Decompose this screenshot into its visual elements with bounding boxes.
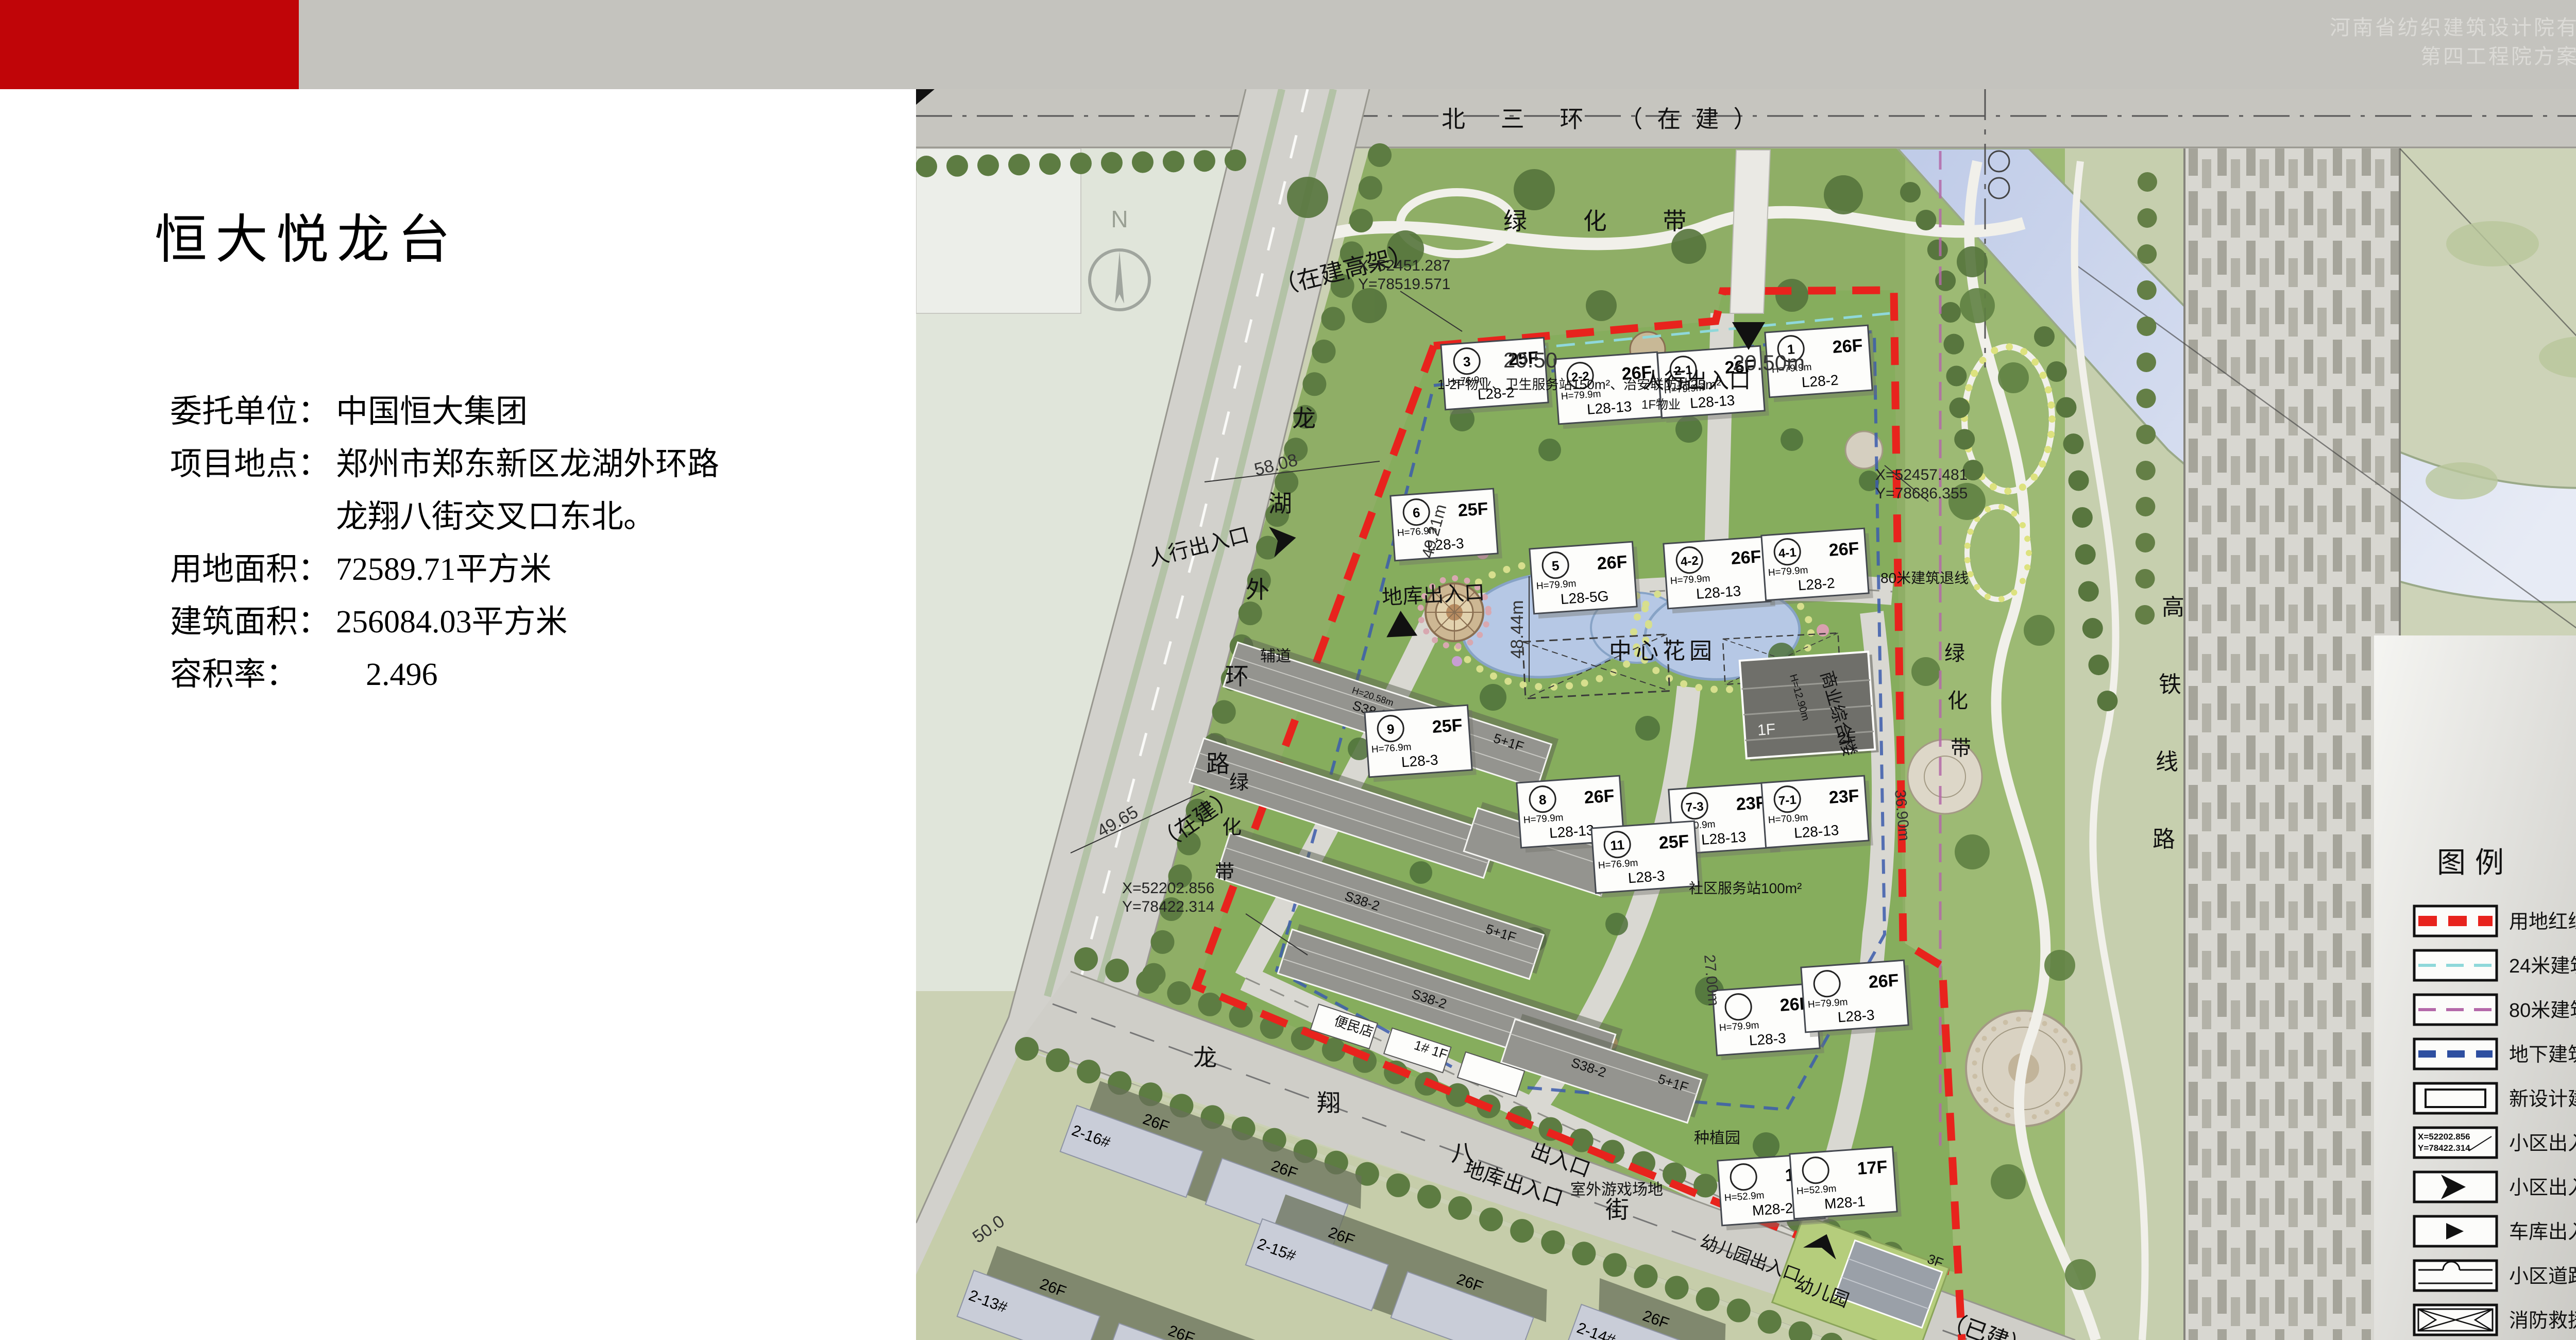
- svg-text:小区道路: 小区道路: [2509, 1266, 2576, 1287]
- svg-text:26F: 26F: [1828, 539, 1860, 560]
- svg-text:翔: 翔: [1317, 1090, 1341, 1116]
- site-plan-map: 北 三 环 （在建）: [916, 89, 2576, 1340]
- slide: 河南省纺织建筑设计院有限公司 第四工程院方案创作所 恒大悦龙台 委托单位： 中国…: [0, 0, 2576, 1340]
- svg-text:7-3: 7-3: [1685, 800, 1704, 815]
- svg-text:化: 化: [1222, 817, 1242, 839]
- tower: 5 26F H=79.9m L28-5G: [1530, 542, 1641, 619]
- svg-text:20.50: 20.50: [1503, 348, 1557, 372]
- svg-text:X=52457.481: X=52457.481: [1875, 466, 1968, 483]
- svg-text:4-1: 4-1: [1778, 546, 1797, 561]
- svg-text:车库出入口: 车库出入口: [2509, 1221, 2576, 1243]
- svg-text:48.44m: 48.44m: [1507, 600, 1527, 659]
- svg-text:路: 路: [2153, 827, 2175, 852]
- tower: 26F H=79.9m L28-3: [1801, 960, 1913, 1037]
- svg-text:环: 环: [1225, 663, 1249, 690]
- svg-text:带: 带: [1215, 862, 1234, 883]
- svg-text:八: 八: [1451, 1140, 1475, 1166]
- compass-north-label: N: [1111, 206, 1128, 232]
- svg-text:L28-5G: L28-5G: [1560, 588, 1609, 607]
- svg-text:L28-2: L28-2: [1801, 372, 1839, 390]
- svg-text:L28-3: L28-3: [1749, 1030, 1787, 1048]
- svg-text:26F: 26F: [1731, 547, 1762, 568]
- svg-text:5: 5: [1551, 558, 1560, 574]
- walkway: [1730, 150, 1770, 313]
- svg-text:街: 街: [1605, 1196, 1629, 1223]
- svg-text:化: 化: [1947, 690, 1968, 712]
- svg-text:龙: 龙: [1193, 1044, 1217, 1071]
- header-bar: 河南省纺织建筑设计院有限公司 第四工程院方案创作所: [0, 0, 2576, 89]
- garden-label: 种植园: [1694, 1130, 1740, 1147]
- svg-text:线: 线: [2156, 749, 2178, 775]
- company-line1: 河南省纺织建筑设计院有限公司: [2330, 13, 2576, 42]
- svg-text:Y=78422.314: Y=78422.314: [1122, 898, 1214, 915]
- tower: 9 25F H=76.9m L28-3: [1365, 705, 1477, 782]
- svg-text:6: 6: [1412, 505, 1421, 521]
- tower: 7-1 23F H=70.9m L28-13: [1761, 776, 1873, 853]
- svg-text:Y=78686.355: Y=78686.355: [1875, 485, 1968, 502]
- svg-text:X=52202.856: X=52202.856: [1122, 880, 1214, 897]
- svg-text:消防救援场地: 消防救援场地: [2509, 1310, 2576, 1332]
- north-road-label: 北 三 环 （在建）: [1442, 106, 1771, 132]
- lake-label: 中心花园: [1609, 639, 1716, 664]
- svg-text:M28-2: M28-2: [1752, 1200, 1793, 1218]
- svg-text:铁: 铁: [2159, 672, 2181, 697]
- svg-text:L28-13: L28-13: [1793, 822, 1839, 841]
- svg-text:小区出入口: 小区出入口: [2509, 1133, 2576, 1154]
- svg-text:25F: 25F: [1658, 831, 1690, 853]
- setback-label: 80米建筑退线: [1880, 570, 1969, 586]
- svg-text:20.50m: 20.50m: [1733, 350, 1805, 375]
- field-client: 委托单位： 中国恒大集团: [170, 386, 719, 438]
- info-panel: 恒大悦龙台 委托单位： 中国恒大集团 项目地点： 郑州市郑东新区龙湖外环路 龙翔…: [0, 89, 916, 1340]
- aux-road-label: 辅道: [1260, 648, 1291, 665]
- service-label: 社区服务站100m²: [1689, 880, 1802, 896]
- svg-text:龙: 龙: [1292, 405, 1316, 432]
- svg-text:L28-13: L28-13: [1689, 392, 1735, 411]
- svg-text:L28-2: L28-2: [1798, 575, 1836, 593]
- legend-entrance-label: 小区出入口: [2509, 1177, 2576, 1199]
- svg-text:L28-13: L28-13: [1549, 822, 1595, 841]
- svg-text:4-2: 4-2: [1680, 554, 1699, 569]
- svg-text:高: 高: [2162, 595, 2184, 620]
- tower: 17F H=52.9m M28-1: [1790, 1147, 1902, 1224]
- svg-text:9: 9: [1386, 721, 1395, 737]
- svg-text:地下建筑轮廓线: 地下建筑轮廓线: [2509, 1044, 2576, 1066]
- svg-text:湖: 湖: [1268, 490, 1292, 517]
- tower: 4-1 26F H=79.9m L28-2: [1761, 528, 1873, 606]
- svg-text:Y=78519.571: Y=78519.571: [1358, 276, 1450, 293]
- commercial-complex: 1F 2F 商业综合楼 H=12.90m: [1740, 651, 1879, 765]
- svg-text:X=52202.856: X=52202.856: [2418, 1132, 2470, 1142]
- svg-text:1F: 1F: [1757, 721, 1776, 739]
- svg-text:外: 外: [1246, 576, 1269, 603]
- svg-text:L28-3: L28-3: [1628, 867, 1666, 886]
- management-label: 1-2F物业、卫生服务站150m²、治安联防站25m²: [1437, 377, 1721, 392]
- svg-text:L28-3: L28-3: [1401, 751, 1439, 770]
- svg-text:26F: 26F: [1832, 336, 1863, 357]
- tower: 11 25F H=76.9m L28-3: [1591, 821, 1703, 898]
- header-accent-block: [0, 0, 299, 89]
- svg-text:80米建筑控制线: 80米建筑控制线: [2509, 1000, 2576, 1021]
- management2-label: 1F物业: [1641, 398, 1681, 412]
- svg-text:L28-13: L28-13: [1701, 829, 1747, 848]
- company-name: 河南省纺织建筑设计院有限公司 第四工程院方案创作所: [2330, 13, 2576, 71]
- svg-text:L28-3: L28-3: [1837, 1007, 1875, 1025]
- svg-text:M28-1: M28-1: [1824, 1193, 1866, 1212]
- north-belt-label: 绿 化 带: [1503, 208, 1711, 234]
- svg-text:新设计建筑物: 新设计建筑物: [2509, 1088, 2576, 1110]
- svg-text:绿: 绿: [1944, 642, 1965, 665]
- svg-text:绿: 绿: [1229, 772, 1249, 794]
- svg-text:23F: 23F: [1828, 786, 1860, 808]
- svg-text:8: 8: [1538, 792, 1547, 808]
- svg-text:17F: 17F: [1857, 1157, 1888, 1179]
- svg-text:25F: 25F: [1458, 499, 1489, 521]
- svg-text:7-1: 7-1: [1778, 793, 1797, 808]
- project-title: 恒大悦龙台: [155, 197, 459, 273]
- svg-text:11: 11: [1609, 837, 1625, 853]
- company-line2: 第四工程院方案创作所: [2330, 42, 2576, 71]
- tower: 6 25F H=76.9m L28-3: [1391, 489, 1502, 566]
- svg-text:3: 3: [1463, 354, 1471, 370]
- rail-corridor: [2184, 120, 2400, 1340]
- field-far: 容积率： 2.496: [170, 648, 719, 701]
- svg-text:26F: 26F: [1597, 552, 1628, 574]
- svg-text:25F: 25F: [1432, 715, 1463, 737]
- svg-text:用地红线: 用地红线: [2509, 911, 2576, 933]
- svg-text:Y=78422.314: Y=78422.314: [2418, 1143, 2470, 1153]
- svg-text:L28-13: L28-13: [1696, 583, 1741, 602]
- legend-title: 图例: [2437, 846, 2513, 879]
- field-location-2: 龙翔八街交叉口东北。: [170, 491, 719, 543]
- project-fields: 委托单位： 中国恒大集团 项目地点： 郑州市郑东新区龙湖外环路 龙翔八街交叉口东…: [170, 386, 719, 701]
- svg-text:26F: 26F: [1584, 786, 1615, 808]
- svg-text:24米建筑控制线: 24米建筑控制线: [2509, 956, 2576, 977]
- svg-text:X=52451.287: X=52451.287: [1358, 257, 1450, 274]
- field-floor-area: 建筑面积： 256084.03平方米: [170, 596, 719, 648]
- field-site-area: 用地面积： 72589.71平方米: [170, 543, 719, 596]
- svg-text:L28-13: L28-13: [1586, 398, 1632, 417]
- svg-text:26F: 26F: [1868, 970, 1900, 992]
- tower: 4-2 26F H=79.9m L28-13: [1664, 537, 1775, 614]
- field-location: 项目地点： 郑州市郑东新区龙湖外环路: [170, 438, 719, 491]
- svg-text:带: 带: [1951, 737, 1971, 760]
- svg-text:路: 路: [1206, 750, 1230, 777]
